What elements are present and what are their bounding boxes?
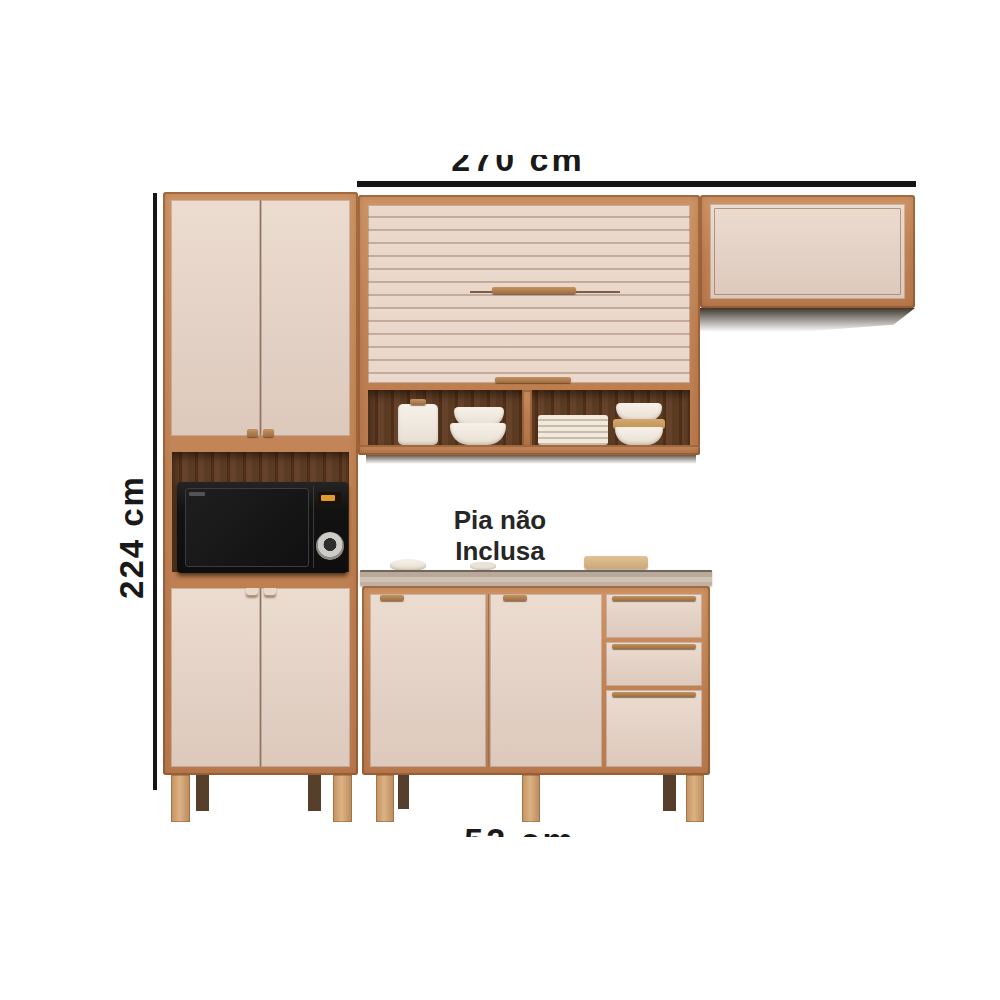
tall-cabinet-lower-door-right: [261, 588, 350, 767]
counter-back-leg-right: [663, 775, 676, 811]
counter-door-right-handle: [503, 595, 527, 601]
tall-cabinet-lower-right-handle: [264, 588, 276, 596]
note-line-1: Pia não: [423, 505, 577, 536]
product-image-canvas: 270 cm 224 cm 52 cm Pia não Inclusa: [0, 0, 1000, 1000]
microwave-dial-knob: [316, 532, 344, 560]
width-dimension-line: [357, 181, 916, 187]
shelf-canister-lid-knob: [410, 399, 426, 405]
shelf-canister: [398, 404, 438, 445]
counter-drawer-3-handle: [612, 692, 696, 697]
counter-drawer-2-handle: [612, 644, 696, 649]
tall-cabinet-front-leg-left: [171, 775, 190, 822]
countertop-small-dish: [470, 562, 496, 570]
counter-front-leg-left: [376, 775, 394, 822]
counter-drawer-3: [606, 690, 702, 767]
roller-door-mid-handle: [492, 287, 576, 294]
roller-door-wall-cabinet: [358, 195, 700, 455]
tall-cabinet-back-leg-right: [308, 775, 321, 811]
counter-drawer-1-handle: [612, 596, 696, 601]
width-label-text: 270 cm: [408, 155, 628, 179]
wall-cabinet-shadow: [366, 455, 696, 464]
microwave-display: [318, 492, 341, 504]
countertop-cutting-board: [584, 556, 648, 569]
counter-door-left-handle: [380, 595, 404, 601]
shelf-bottom-board: [358, 445, 700, 455]
microwave-door: [185, 488, 309, 567]
roller-door-bottom-handle: [495, 377, 571, 383]
counter-door-left: [370, 594, 486, 767]
sink-not-included-note: Pia não Inclusa: [423, 505, 577, 567]
width-dimension-label: 270 cm: [408, 155, 628, 179]
right-wall-cabinet-shadow: [700, 308, 915, 332]
shelf-bowl-bottom: [450, 423, 506, 445]
countertop: [360, 570, 712, 586]
microwave: [177, 482, 348, 573]
tall-cabinet-upper-door-gap: [260, 200, 261, 436]
shelf-divider: [522, 390, 532, 447]
tall-cabinet-back-leg-left: [196, 775, 209, 811]
countertop-dark-tray: [652, 558, 694, 569]
right-wall-cabinet-door: [710, 204, 905, 299]
microwave-brand-mark: [189, 492, 205, 496]
roller-door: [368, 205, 690, 383]
microwave-panel-divider: [313, 486, 314, 568]
counter-front-leg-right: [686, 775, 704, 822]
depth-dimension-label: 52 cm: [432, 822, 608, 837]
shelf-plate-stack: [538, 415, 608, 445]
counter-door-gap: [488, 594, 489, 767]
counter-cabinet: [362, 586, 710, 775]
counter-front-leg-middle: [522, 775, 540, 822]
tall-cabinet-lower-left-handle: [246, 588, 258, 596]
tall-cabinet: [163, 192, 358, 775]
depth-label-text: 52 cm: [432, 822, 608, 837]
tall-cabinet-lower-door-gap: [260, 588, 261, 767]
counter-back-leg-left: [398, 775, 409, 809]
tall-cabinet-upper-left-handle: [247, 429, 258, 437]
tall-cabinet-lower-door-left: [171, 588, 260, 767]
tall-cabinet-upper-door-right: [261, 200, 350, 436]
counter-door-right: [490, 594, 602, 767]
microwave-display-digits: [321, 495, 335, 501]
right-wall-cabinet: [700, 195, 915, 308]
note-line-2: Inclusa: [423, 536, 577, 567]
tall-cabinet-upper-door-left: [171, 200, 260, 436]
right-wall-cabinet-door-beading: [714, 208, 901, 295]
tall-cabinet-upper-right-handle: [263, 429, 274, 437]
height-label-text: 224 cm: [113, 475, 151, 599]
tall-cabinet-front-leg-right: [333, 775, 352, 822]
